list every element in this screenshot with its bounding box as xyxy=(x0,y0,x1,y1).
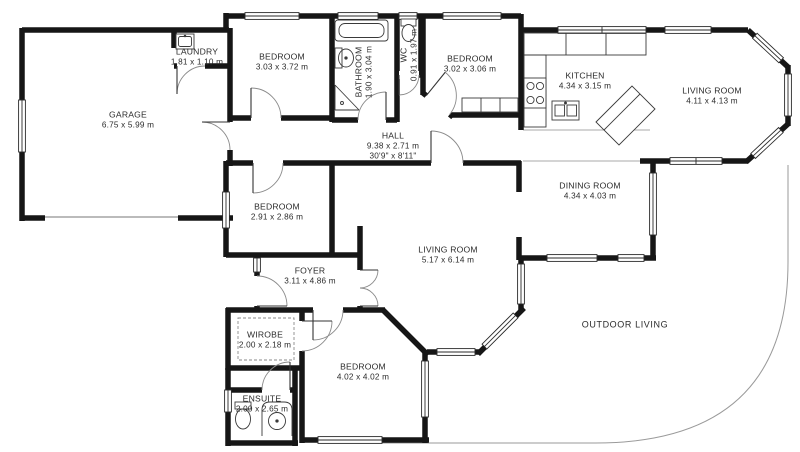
room-label-foyer: FOYER 3.11 x 4.86 m xyxy=(284,266,336,287)
stove-icon xyxy=(524,78,546,108)
room-label-living-room-main: LIVING ROOM 5.17 x 6.14 m xyxy=(418,245,478,266)
closet-shelf xyxy=(462,98,518,112)
room-label-bedroom-bottom: BEDROOM 4.02 x 4.02 m xyxy=(337,362,389,383)
room-label-laundry: LAUNDRY 1.81 x 1.10 m xyxy=(171,47,223,68)
room-label-kitchen: KITCHEN 4.34 x 3.15 m xyxy=(559,71,611,92)
room-label-bedroom-top: BEDROOM 3.03 x 3.72 m xyxy=(256,52,308,73)
room-label-wardrobe: WIROBE 2.00 x 2.18 m xyxy=(239,330,291,351)
bathroom-basin-icon xyxy=(335,48,354,68)
outdoor-boundary xyxy=(344,165,788,443)
room-label-dining-room: DINING ROOM 4.34 x 4.03 m xyxy=(559,181,620,202)
floor-plan: GARAGE 6.75 x 5.99 m LAUNDRY 1.81 x 1.10… xyxy=(0,0,800,452)
room-label-wc: WC 0.91 x 1.97 m xyxy=(399,29,420,81)
open-plan-lines xyxy=(523,130,650,161)
garage-door xyxy=(45,214,178,223)
room-label-garage: GARAGE 6.75 x 5.99 m xyxy=(102,110,154,131)
room-label-living-room-right: LIVING ROOM 4.11 x 4.13 m xyxy=(682,86,742,107)
bathtub-icon xyxy=(335,20,388,41)
room-label-bathroom: BATHROOM 1.90 x 3.04 m xyxy=(354,46,375,98)
doors xyxy=(177,62,469,394)
kitchen-island xyxy=(596,86,655,145)
room-label-bedroom-mid: BEDROOM 2.91 x 2.86 m xyxy=(251,202,303,223)
kitchen-sink-icon xyxy=(552,101,579,120)
room-label-outdoor-living: OUTDOOR LIVING xyxy=(582,319,668,330)
room-label-ensuite: ENSUITE 2.00 x 2.65 m xyxy=(236,394,288,415)
room-label-bedroom-top-right: BEDROOM 3.02 x 3.06 m xyxy=(444,54,496,75)
room-label-hall: HALL 9.38 x 2.71 m 30'9" x 8'11" xyxy=(367,130,419,161)
